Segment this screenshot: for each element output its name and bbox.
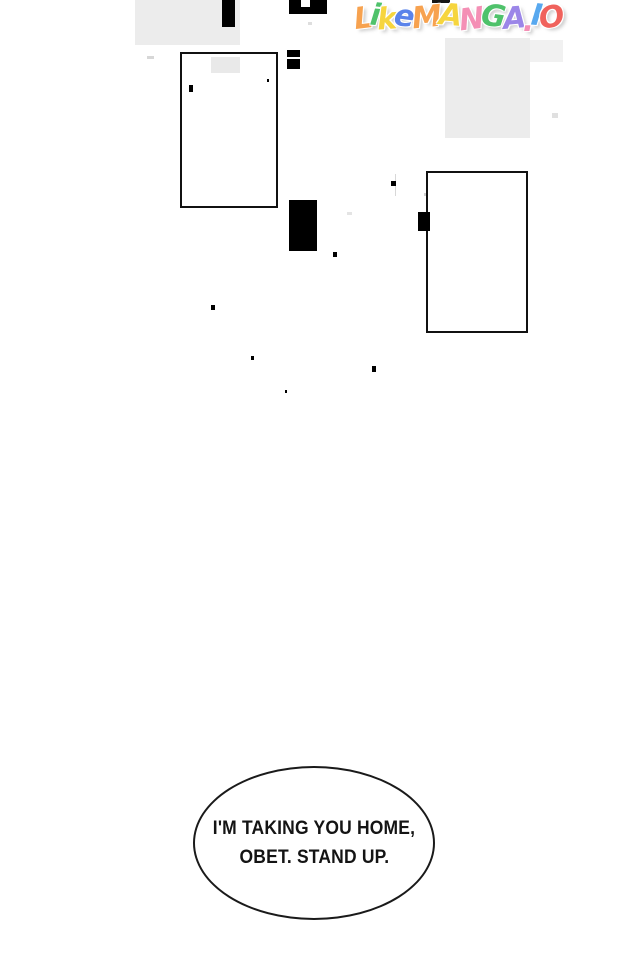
ink-blot	[418, 212, 430, 231]
background-shade	[445, 38, 530, 138]
comic-panel-outline-1	[180, 52, 278, 208]
ink-speck	[147, 56, 154, 59]
watermark-letter: .	[523, 5, 534, 39]
site-watermark-logo: LikeMANGA.IO	[354, 1, 562, 41]
ink-blot	[287, 59, 300, 69]
comic-page-image[interactable]: LikeMANGA.IO I'M TAKING YOU HOME, OBET. …	[0, 0, 625, 953]
manga-reader-page: LikeMANGA.IO I'M TAKING YOU HOME, OBET. …	[0, 0, 625, 953]
ink-blot	[189, 85, 193, 92]
watermark-letter: L	[352, 1, 375, 37]
watermark-letter: G	[479, 0, 508, 35]
watermark-letter: A	[437, 0, 463, 34]
ink-blot	[432, 0, 450, 3]
speech-text-line-1: I'M TAKING YOU HOME,	[213, 814, 415, 843]
ink-blot-notch	[301, 0, 310, 7]
background-shade	[530, 40, 563, 62]
ink-speck	[285, 390, 287, 393]
ink-speck	[552, 113, 558, 118]
ink-blot	[287, 50, 300, 57]
panel-shade	[211, 57, 240, 73]
ink-blot	[222, 0, 235, 27]
ink-speck	[308, 22, 312, 25]
speech-bubble: I'M TAKING YOU HOME, OBET. STAND UP.	[193, 766, 435, 920]
watermark-letter: N	[457, 2, 486, 39]
ink-speck	[391, 181, 396, 186]
ink-speck	[251, 356, 254, 360]
ink-blot	[289, 200, 317, 251]
ink-speck	[372, 366, 376, 372]
comic-panel-outline-2	[426, 171, 528, 333]
watermark-letter: i	[369, 0, 383, 33]
ink-speck	[267, 79, 269, 82]
ink-speck	[347, 212, 352, 215]
watermark-letter: k	[376, 2, 398, 37]
watermark-letter: e	[392, 0, 417, 35]
watermark-letter: I	[530, 0, 545, 34]
watermark-letter: M	[410, 0, 443, 36]
watermark-letter: O	[537, 0, 567, 37]
watermark-letter: A	[501, 1, 527, 37]
speech-text-line-2: OBET. STAND UP.	[239, 843, 389, 872]
ink-speck	[211, 305, 215, 310]
ink-speck	[333, 252, 337, 257]
